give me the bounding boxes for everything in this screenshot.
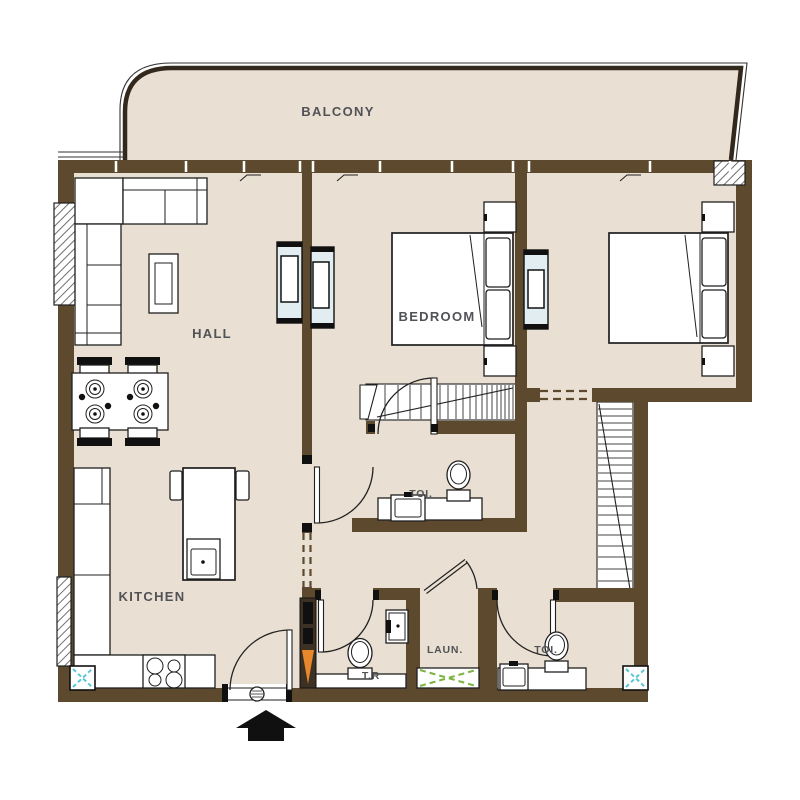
pillow [486,290,510,339]
kitchen-counter-left [74,468,110,655]
chair-seat [128,428,157,438]
floor-plan: BALCONY HALL BEDROOM KITCHEN TOI. LAUN. … [0,0,800,800]
wall-laundry-right [478,588,497,688]
staircase-vertical [597,402,633,590]
floor-plan-page: BALCONY HALL BEDROOM KITCHEN TOI. LAUN. … [0,0,800,800]
nightstand [484,202,516,232]
pillow [702,290,726,338]
nightstand [484,346,516,376]
label-balcony: BALCONY [301,104,374,119]
chair-back [77,357,112,365]
column-left-upper [54,203,76,305]
entry-arrow [236,710,296,741]
label-laundry: LAUN. [427,644,463,656]
tv-unit-hall [277,242,302,323]
toilet [447,461,470,501]
wall-right-upper [736,160,752,402]
island-sink [187,539,220,579]
wall-toi1-top [434,421,527,434]
column-left-lower [57,577,71,666]
label-powder-room: T.R [362,670,380,682]
tv-unit-bedroom [311,247,334,328]
nightstand [702,346,734,376]
wall-sink [386,610,408,643]
riser-shaft [300,598,316,688]
tv-screen [528,270,544,308]
label-toilet-upper: TOI. [409,488,432,500]
label-bedroom: BEDROOM [399,309,476,324]
pillow [702,238,726,286]
dining-table [72,373,168,430]
balcony [58,63,747,160]
pillow [486,238,510,287]
label-toilet-lower: TOI. [534,644,557,656]
laundry-fixtures [417,668,479,688]
coffee-table [149,254,178,313]
label-kitchen: KITCHEN [119,589,186,604]
chair-back [77,438,112,446]
stove [143,655,185,688]
hall-door-leaf [315,467,320,523]
wall-top [58,160,752,173]
stool [236,471,249,500]
staircase-horizontal [360,384,517,420]
parapet-line [58,152,126,157]
wall-toi2-top [553,588,634,602]
wall-right-lower [634,388,648,702]
tv-screen [313,262,329,308]
wall-bedroom2-south-e [592,388,634,402]
balcony-floor [125,68,741,160]
nightstand [702,202,734,232]
stool [170,471,182,500]
entry-door-leaf [287,630,292,690]
tv-screen [281,256,298,302]
label-hall: HALL [192,326,232,341]
wall-bedroom2-south-right [634,388,752,402]
pr-door-leaf [319,600,324,652]
chair-back [125,357,160,365]
wall-bedroom-divider [515,173,527,532]
chair-seat [80,428,109,438]
wall-bedroom2-south-w [515,388,540,402]
chair-back [125,438,160,446]
tv-unit-bedroom2 [524,250,548,329]
